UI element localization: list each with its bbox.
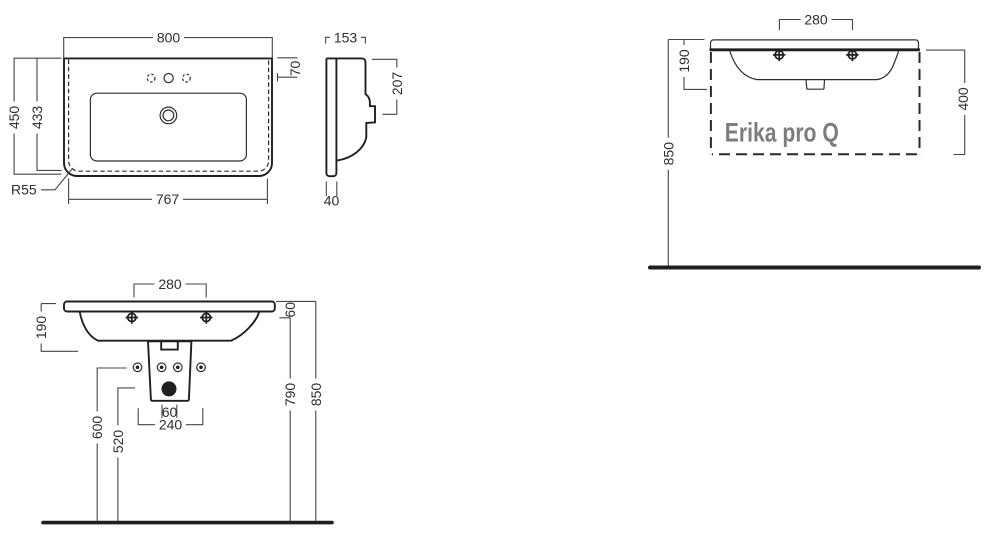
svg-text:800: 800 — [157, 30, 181, 46]
svg-text:433: 433 — [29, 106, 45, 130]
svg-text:R55: R55 — [11, 182, 37, 198]
svg-text:790: 790 — [282, 383, 298, 407]
svg-text:Erika pro Q: Erika pro Q — [725, 117, 839, 147]
svg-text:240: 240 — [159, 417, 183, 433]
svg-text:190: 190 — [33, 316, 49, 340]
svg-text:450: 450 — [6, 106, 22, 130]
svg-text:850: 850 — [308, 383, 324, 407]
svg-text:520: 520 — [110, 430, 126, 454]
svg-text:280: 280 — [804, 12, 828, 28]
svg-text:190: 190 — [676, 49, 692, 73]
svg-text:280: 280 — [158, 276, 182, 292]
svg-text:400: 400 — [955, 87, 971, 111]
svg-text:153: 153 — [334, 29, 358, 45]
svg-text:207: 207 — [389, 72, 405, 96]
svg-text:40: 40 — [324, 193, 340, 209]
svg-text:850: 850 — [660, 142, 676, 166]
svg-text:70: 70 — [287, 61, 303, 77]
svg-text:60: 60 — [282, 302, 298, 318]
svg-text:600: 600 — [89, 416, 105, 440]
svg-text:767: 767 — [156, 191, 180, 207]
